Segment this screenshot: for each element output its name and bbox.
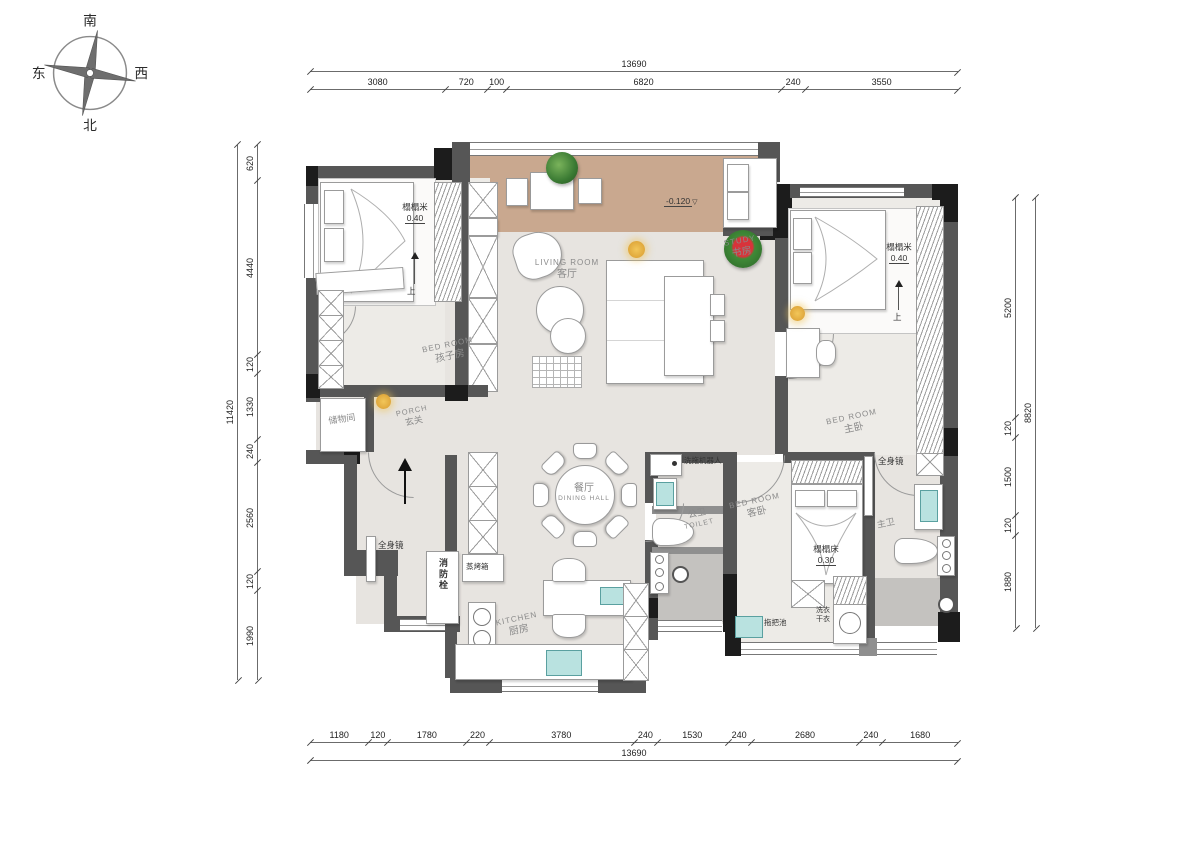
balcony-chair <box>578 178 602 204</box>
wall <box>445 455 457 553</box>
washer-label-line2: 干衣 <box>816 616 830 623</box>
kitchen-sink <box>546 650 582 676</box>
full-mirror-hall-note: 全身镜 <box>378 540 404 551</box>
lamp-icon <box>790 306 805 321</box>
tatami-height: 0.30 <box>816 555 837 566</box>
dim-value: 3080 <box>310 74 445 90</box>
step-arrow-line <box>898 286 899 310</box>
dim-value: 240 <box>634 727 657 743</box>
desk-chair <box>710 294 725 316</box>
full-mirror <box>864 456 873 516</box>
window <box>658 620 722 632</box>
dim-value: 1680 <box>882 727 958 743</box>
column <box>445 385 468 401</box>
room-name-en: LIVING ROOM <box>522 258 612 268</box>
dim-value: 240 <box>781 74 805 90</box>
entry-arrow-line <box>404 470 406 504</box>
balcony-chair <box>506 178 528 206</box>
floor-plan-sheet: 南 北 东 西 13690 308072010068202403550 1180… <box>0 0 1200 848</box>
daybed-cushion <box>727 164 749 192</box>
cabinet <box>468 452 498 488</box>
washer-label-line1: 洗衣 <box>816 607 830 614</box>
dim-left-total: 11420 <box>222 145 238 680</box>
compass-south-label: 南 <box>83 14 97 29</box>
bathroom-sink <box>920 490 938 522</box>
dim-value: 1180 <box>310 727 368 743</box>
dim-value: 1530 <box>657 727 728 743</box>
robot-dot-icon <box>672 461 677 466</box>
study-desk <box>664 276 714 376</box>
island-chair <box>552 558 586 582</box>
tatami-label: 榻榻米 <box>402 202 428 212</box>
dim-value: 11420 <box>222 145 238 680</box>
dim-value: 5200 <box>1000 198 1016 418</box>
up-master-note: 上 <box>893 312 902 323</box>
daybed-cushion <box>727 192 749 220</box>
cabinet <box>468 520 498 554</box>
dim-value: 620 <box>242 145 258 181</box>
window <box>800 187 904 197</box>
island-chair <box>552 614 586 638</box>
shoe-cabinet <box>468 218 498 236</box>
dining-chair <box>573 443 597 459</box>
tatami-guest-note: 榻榻床 0.30 <box>794 544 858 566</box>
column <box>938 612 960 642</box>
dining-chair <box>573 531 597 547</box>
cabinet <box>468 236 498 298</box>
shower-control-panel <box>937 536 955 576</box>
mop-sink <box>735 616 763 638</box>
desk <box>786 328 820 378</box>
dim-value: 6820 <box>506 74 781 90</box>
dim-value: 120 <box>242 572 258 591</box>
steam-oven-label: 蒸烤箱 <box>466 562 489 572</box>
desk-chair <box>710 320 725 342</box>
shower-head-icon <box>672 566 689 583</box>
tatami-children-note: 榻榻米 0.40 <box>390 202 440 224</box>
fire-hydrant-label: 消防栓 <box>437 558 450 591</box>
master-shower-floor <box>873 578 941 626</box>
cabinet <box>318 315 344 342</box>
compass-rose-icon: 南 北 东 西 <box>26 12 154 134</box>
dim-left-segments: 6204440120133024025601201990 <box>242 145 258 680</box>
dim-value: 120 <box>1000 418 1016 438</box>
desk-chair <box>816 340 836 366</box>
room-name-cn: 客厅 <box>522 268 612 281</box>
dim-bottom-segments: 118012017802203780240153024026802401680 <box>310 727 958 743</box>
dim-value: 1880 <box>1000 536 1016 628</box>
dim-right-segments: 520012015001201880 <box>1000 198 1016 628</box>
step-arrow-head <box>895 280 903 287</box>
step-arrow-line <box>414 258 415 284</box>
window <box>877 642 937 655</box>
tatami-height: 0.40 <box>889 253 910 264</box>
cabinet <box>468 182 498 218</box>
balcony-level-note: -0.120▽ <box>664 196 698 207</box>
cabinet <box>318 290 344 317</box>
dim-value: 1330 <box>242 374 258 440</box>
full-mirror <box>366 536 376 582</box>
wash-robot-label: 洗拖机器人 <box>684 456 722 466</box>
dining-hall-label: 餐厅 DINING HALL <box>544 482 624 503</box>
fire-hydrant-cabinet: 消防栓 <box>426 551 459 624</box>
window <box>470 142 758 156</box>
pillow <box>795 490 825 507</box>
entry-arrow-head <box>398 458 412 471</box>
dim-bottom-total: 13690 <box>310 745 958 761</box>
pillow <box>827 490 857 507</box>
dim-value: 120 <box>1000 516 1016 536</box>
washer-dryer-label: 洗衣 干衣 <box>806 606 830 624</box>
compass-north-label: 北 <box>83 118 97 133</box>
living-room-label: LIVING ROOM 客厅 <box>522 258 612 281</box>
level-value: -0.120 <box>664 196 692 207</box>
wall <box>775 238 788 332</box>
level-mark-icon: ▽ <box>692 199 697 206</box>
dim-value: 1780 <box>387 727 466 743</box>
cabinet <box>623 583 649 618</box>
tatami-height: 0.40 <box>405 213 426 224</box>
wall <box>344 455 357 563</box>
cabinet <box>318 365 344 389</box>
dim-value: 2560 <box>242 463 258 572</box>
cabinet-hatch <box>833 576 867 606</box>
cabinet <box>623 616 649 651</box>
dim-right-total: 8820 <box>1020 198 1036 628</box>
dim-value: 1990 <box>242 591 258 680</box>
cabinet <box>623 649 649 681</box>
kitchen-counter <box>455 644 632 680</box>
dim-value: 720 <box>445 74 487 90</box>
step-arrow-head <box>411 252 419 259</box>
room-name-en: DINING HALL <box>544 495 624 503</box>
dim-value: 1500 <box>1000 438 1016 516</box>
lamp-icon <box>628 241 645 258</box>
wash-robot-dock <box>650 454 682 476</box>
dim-value: 120 <box>242 355 258 374</box>
shower-head-icon <box>938 596 955 613</box>
tatami-label: 榻榻床 <box>813 544 839 554</box>
cabinet <box>318 340 344 367</box>
dim-value: 220 <box>466 727 488 743</box>
dim-value: 240 <box>859 727 882 743</box>
lamp-icon <box>376 394 391 409</box>
pillow <box>324 228 344 262</box>
washer-drum-icon <box>839 612 861 634</box>
column <box>452 142 470 182</box>
cabinet <box>791 580 825 608</box>
dim-value: 2680 <box>751 727 860 743</box>
dim-value: 4440 <box>242 181 258 355</box>
tatami-label: 榻榻米 <box>886 242 912 252</box>
dim-value: 13690 <box>310 56 958 72</box>
plant-icon <box>546 152 578 184</box>
wall <box>775 376 788 454</box>
mop-sink-label: 拖把池 <box>764 618 787 628</box>
pillow <box>793 252 812 284</box>
up-children-note: 上 <box>407 286 416 297</box>
pillow <box>793 218 812 250</box>
bathroom-sink <box>656 482 674 506</box>
dim-value: 240 <box>728 727 751 743</box>
tatami-master-note: 榻榻米 0.40 <box>874 242 924 264</box>
room-name-cn: 餐厅 <box>544 482 624 495</box>
dim-value: 3550 <box>805 74 958 90</box>
shower-control-panel <box>650 552 669 594</box>
dim-value: 100 <box>487 74 506 90</box>
compass-west-label: 西 <box>134 66 148 81</box>
compass-east-label: 东 <box>32 66 46 81</box>
rug <box>532 356 582 388</box>
wardrobe-hatch <box>791 460 863 484</box>
coffee-table <box>550 318 586 354</box>
dim-value: 13690 <box>310 745 958 761</box>
cabinet <box>468 486 498 522</box>
dim-value: 8820 <box>1020 198 1036 628</box>
dim-value: 3780 <box>489 727 634 743</box>
window <box>502 679 598 692</box>
wardrobe-hatch <box>434 182 462 302</box>
full-mirror-master-note: 全身镜 <box>878 456 904 467</box>
dim-top-segments: 308072010068202403550 <box>310 74 958 90</box>
dim-value: 240 <box>242 440 258 463</box>
dim-top-total: 13690 <box>310 56 958 72</box>
pillow <box>324 190 344 224</box>
dim-value: 120 <box>368 727 387 743</box>
